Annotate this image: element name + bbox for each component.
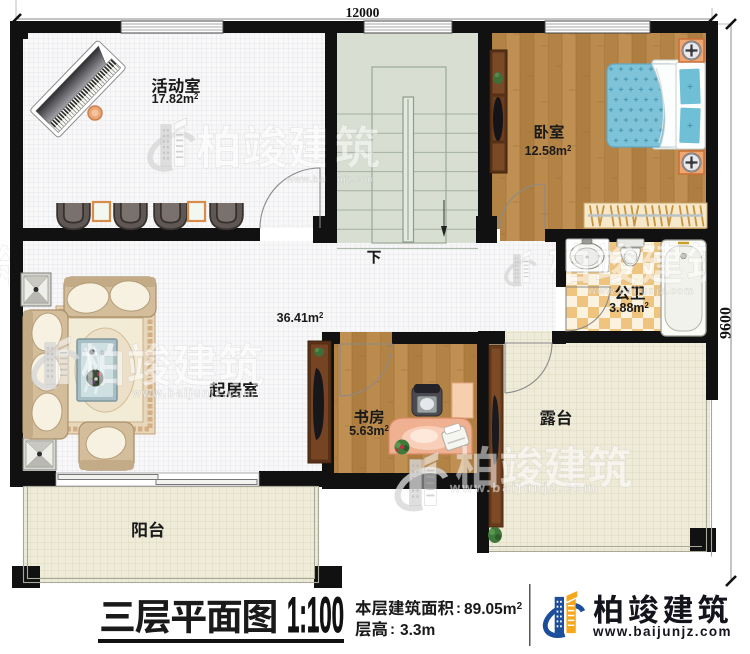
svg-text:www.baijunjz.com: www.baijunjz.com: [449, 480, 597, 495]
svg-text:17.82m2: 17.82m2: [152, 92, 199, 106]
svg-text:89.05m2: 89.05m2: [464, 601, 523, 618]
svg-text:www.baijunjz.com: www.baijunjz.com: [592, 624, 732, 639]
svg-text:12000: 12000: [346, 5, 380, 20]
svg-text::: :: [456, 600, 461, 617]
svg-text:3.88m2: 3.88m2: [609, 301, 649, 315]
svg-text:1:100: 1:100: [287, 587, 344, 643]
svg-text:5.63m2: 5.63m2: [349, 424, 389, 438]
svg-text:36.41m2: 36.41m2: [277, 311, 324, 325]
svg-text::: :: [390, 621, 395, 638]
svg-text:www.baijunjz.com: www.baijunjz.com: [587, 285, 695, 297]
svg-text:9600: 9600: [718, 307, 735, 339]
svg-text:3.3m: 3.3m: [400, 622, 435, 639]
svg-text:www.baijunjz.com: www.baijunjz.com: [131, 388, 255, 400]
svg-text:12.58m2: 12.58m2: [525, 144, 572, 158]
